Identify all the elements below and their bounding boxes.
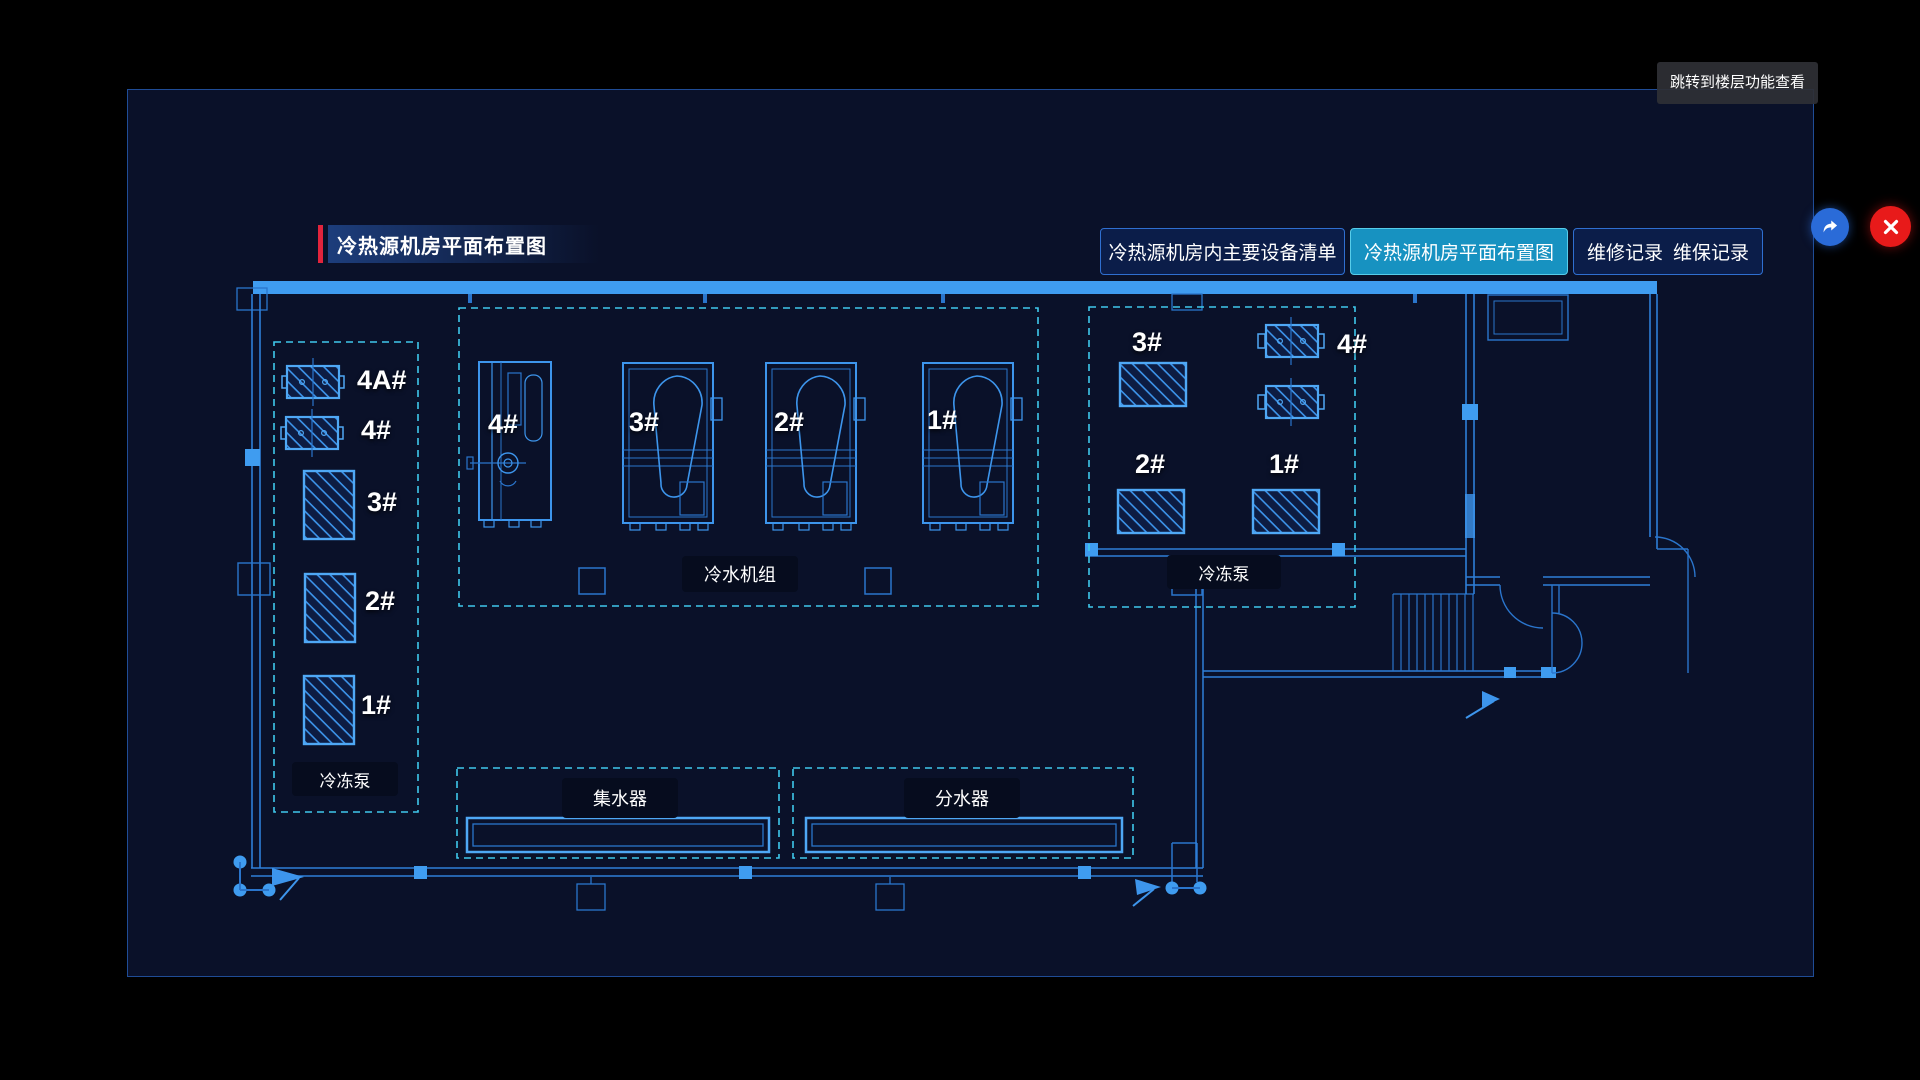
main-panel: 冷热源机房平面布置图 冷热源机房内主要设备清单 冷热源机房平面布置图 维修记录 … <box>127 89 1814 977</box>
chiller-label-2: 2# <box>774 409 804 436</box>
caption-chillers: 冷水机组 <box>682 556 798 592</box>
right-pump-label-4: 4# <box>1337 331 1367 358</box>
page-title-text: 冷热源机房平面布置图 <box>328 225 599 263</box>
close-icon <box>1882 218 1900 236</box>
right-pump-label-2: 2# <box>1135 451 1165 478</box>
jump-to-floor-button[interactable] <box>1811 208 1849 246</box>
records-tab-group: 维修记录 维保记录 <box>1573 228 1763 275</box>
left-pump-label-4A: 4A# <box>357 367 407 394</box>
left-pump-label-4: 4# <box>361 417 391 444</box>
left-pump-label-1: 1# <box>361 692 391 719</box>
caption-left-pumps: 冷冻泵 <box>292 762 398 796</box>
caption-collector: 集水器 <box>562 778 678 818</box>
tooltip-jump-to-floor: 跳转到楼层功能查看 <box>1657 62 1818 104</box>
close-button[interactable] <box>1870 206 1911 247</box>
tab-equipment-list[interactable]: 冷热源机房内主要设备清单 <box>1100 228 1345 275</box>
caption-right-pumps: 冷冻泵 <box>1167 555 1281 589</box>
chiller-label-4: 4# <box>488 411 518 438</box>
left-pump-label-3: 3# <box>367 489 397 516</box>
chiller-label-3: 3# <box>629 409 659 436</box>
chiller-label-1: 1# <box>927 407 957 434</box>
right-pump-label-3: 3# <box>1132 329 1162 356</box>
tab-floor-plan[interactable]: 冷热源机房平面布置图 <box>1350 228 1568 275</box>
share-arrow-icon <box>1820 217 1840 237</box>
right-pump-label-1: 1# <box>1269 451 1299 478</box>
page-title: 冷热源机房平面布置图 <box>318 225 599 263</box>
tab-maintenance-records[interactable]: 维保记录 <box>1673 238 1749 265</box>
title-accent-bar <box>318 225 323 263</box>
left-pump-label-2: 2# <box>365 588 395 615</box>
caption-distributor: 分水器 <box>904 778 1020 818</box>
tab-repair-records[interactable]: 维修记录 <box>1587 238 1663 265</box>
screen: 跳转到楼层功能查看 冷热源机房平面布置图 冷热源机房内主要设备清单 冷热源机房平… <box>0 0 1920 1080</box>
